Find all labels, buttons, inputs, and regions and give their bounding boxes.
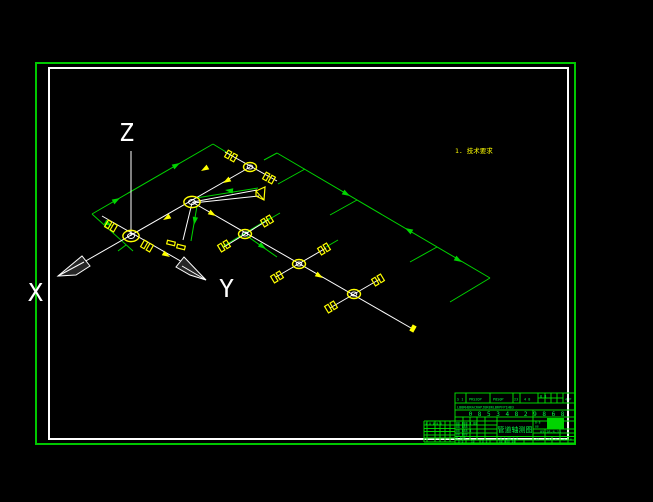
green-reference-line[interactable] [330,200,357,215]
tb-bottom-cell: 8-8 [458,440,464,444]
yellow-flow-arrow-icon[interactable] [200,165,210,174]
pipe-line[interactable] [193,190,257,202]
green-flow-arrow-icon[interactable] [112,196,122,205]
green-flow-arrow-icon[interactable] [172,161,182,170]
tb-top-cell: 4 P [565,398,571,402]
yellow-flow-arrow-icon[interactable] [222,177,232,186]
yellow-flow-arrow-icon[interactable] [315,272,325,281]
tb-top-cell: 8 8 [540,395,546,399]
tb-left-table-row: 8 8 8 8 8 [426,421,442,425]
tb-top-cell: S 1 [457,398,463,402]
tb-bottom-cell: 8 8 [482,440,488,444]
green-reference-line[interactable] [278,169,305,184]
pipe-end-terminator[interactable] [409,324,416,332]
flange-plate[interactable] [218,243,225,252]
tb-drawing-title: 管道轴测图 [498,425,533,434]
cad-scene[interactable]: Z X Y 1. 技术要求 S 1 PRS2OP P8S0P 23 4 8 8 … [0,0,653,502]
tb-drawing-number: 0 8 5 3 4 8 2 9 8 6 8 [469,411,566,418]
flange-plate[interactable] [271,274,278,283]
z-axis-label: Z [119,118,134,147]
flange-plate[interactable] [377,274,384,283]
flange-pair-icon[interactable] [271,271,284,283]
cad-drawing-viewport[interactable]: Z X Y 1. 技术要求 S 1 PRS2OP P8S0P 23 4 8 8 … [0,0,653,502]
tb-top-cell: P8S0P [493,398,504,402]
pipe-line[interactable] [183,203,192,240]
technical-note-text[interactable]: 1. 技术要求 [455,146,493,155]
tb-bottom-cell: 58 [471,440,475,444]
valve-symbol-icon[interactable] [256,187,265,200]
tb-bottom-cell: 88 888 88 [499,440,515,444]
x-axis-label: X [28,278,43,307]
green-flow-arrow-icon[interactable] [342,190,352,199]
isometric-piping-diagram[interactable] [58,144,490,333]
tb-top-cell: 4 8 [524,398,530,402]
title-block[interactable]: S 1 PRS2OP P8S0P 23 4 8 8 8 4 P LBBRHBRA… [424,393,575,444]
green-reference-line[interactable] [118,245,126,251]
tb-band-text: LBBRHBRACRHPJBR8RLBRPFP1HB3 [457,406,514,410]
tb-right-cell: 81 [536,438,540,442]
tb-right-small: 88 [535,425,539,429]
tilted-flange-plate-icon[interactable] [177,244,186,249]
green-reference-line[interactable] [450,278,490,302]
outer-frame-line [36,63,575,444]
flange-plate[interactable] [146,243,153,252]
tb-top-cell: 23 [514,398,518,402]
pipe-line[interactable] [330,279,380,308]
flange-plate[interactable] [230,153,237,162]
green-reference-line[interactable] [410,247,437,262]
tb-right-cell: 48 [562,438,566,442]
y-axis-label: Y [219,274,234,303]
logo-block [547,418,564,429]
flange-plate[interactable] [323,243,330,252]
tb-date: 05-28-6-11 [540,430,561,434]
green-flow-arrow-icon[interactable] [191,217,198,226]
green-flow-arrow-icon[interactable] [404,226,414,235]
flange-plate[interactable] [325,304,332,313]
tilted-flange-plate-icon[interactable] [167,240,176,245]
border-frame [36,63,575,444]
flange-plate[interactable] [110,223,117,232]
tb-right-cell: 8 [570,438,572,442]
tb-top-cell: PRS2OP [469,398,482,402]
flange-pair-icon[interactable] [141,240,154,252]
green-reference-line[interactable] [264,153,277,160]
green-flow-arrow-icon[interactable] [454,256,464,265]
yellow-flow-arrow-icon[interactable] [208,210,218,219]
tb-right-cell: 8 [555,438,557,442]
tb-right-cell: 45 [547,438,551,442]
flange-plate[interactable] [141,240,148,249]
